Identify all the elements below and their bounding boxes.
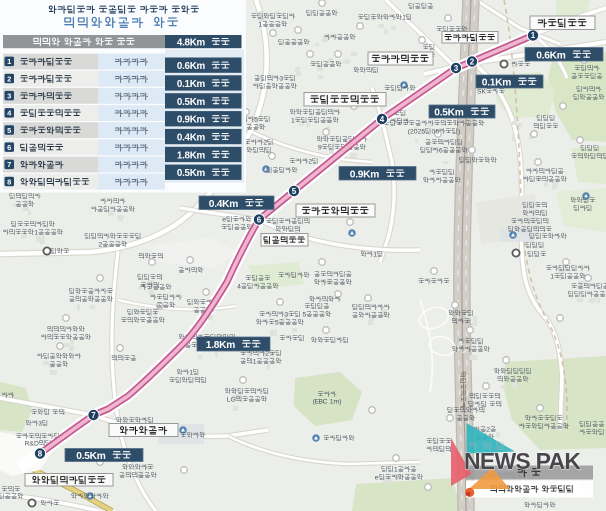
- svg-text:e: e: [375, 474, 379, 481]
- svg-text:1: 1: [402, 14, 406, 21]
- svg-text:1: 1: [373, 251, 377, 258]
- svg-text:1: 1: [550, 273, 554, 280]
- svg-text:(EBC: (EBC: [313, 398, 328, 405]
- svg-text:2: 2: [470, 57, 475, 66]
- svg-text:3: 3: [454, 64, 459, 73]
- svg-text:1: 1: [394, 466, 398, 473]
- svg-text:NEWS PAK: NEWS PAK: [464, 448, 582, 474]
- svg-text:R&D: R&D: [25, 440, 39, 447]
- svg-text:e: e: [222, 216, 226, 223]
- svg-text:0.5Km: 0.5Km: [434, 108, 464, 119]
- svg-text:(2025: (2025: [408, 128, 426, 135]
- svg-text:0.5Km: 0.5Km: [177, 97, 206, 108]
- svg-text:3: 3: [279, 75, 283, 82]
- svg-text:1: 1: [189, 369, 193, 376]
- svg-text:1: 1: [7, 57, 11, 66]
- svg-text:1: 1: [34, 229, 38, 236]
- svg-text:0.1Km: 0.1Km: [482, 78, 512, 89]
- svg-text:2: 2: [7, 74, 11, 83]
- svg-text:1m): 1m): [330, 398, 342, 405]
- svg-text:5: 5: [7, 126, 11, 135]
- svg-text:0.4Km: 0.4Km: [177, 133, 206, 144]
- svg-text:4: 4: [380, 115, 385, 124]
- svg-text:5: 5: [303, 311, 307, 318]
- svg-text:8: 8: [7, 177, 11, 186]
- svg-text:7: 7: [7, 160, 11, 169]
- svg-text:5: 5: [254, 116, 258, 123]
- svg-text:1: 1: [291, 117, 295, 124]
- svg-text:0.4Km: 0.4Km: [209, 199, 239, 210]
- svg-text:0.6Km: 0.6Km: [177, 61, 206, 72]
- svg-text:SK: SK: [477, 88, 487, 95]
- svg-text:5: 5: [292, 187, 297, 196]
- svg-text:0.1Km: 0.1Km: [177, 79, 206, 90]
- svg-text:0.9Km: 0.9Km: [350, 169, 380, 180]
- svg-text:1.8Km: 1.8Km: [206, 340, 236, 351]
- svg-text:1: 1: [253, 358, 257, 365]
- svg-text:0.9Km: 0.9Km: [177, 115, 206, 126]
- svg-text:3: 3: [284, 311, 288, 318]
- svg-text:0.5Km: 0.5Km: [76, 451, 106, 462]
- svg-text:2: 2: [265, 350, 269, 357]
- svg-text:0.5Km: 0.5Km: [177, 168, 206, 179]
- svg-text:3: 3: [38, 420, 42, 427]
- svg-text:5: 5: [275, 319, 279, 326]
- svg-text:3: 3: [7, 92, 11, 101]
- svg-text:0.6Km: 0.6Km: [536, 50, 566, 61]
- svg-text:1: 1: [531, 31, 536, 40]
- svg-text:2: 2: [308, 158, 312, 165]
- svg-text:2: 2: [263, 139, 267, 146]
- svg-text:4: 4: [237, 283, 241, 290]
- svg-text:1.8Km: 1.8Km: [177, 150, 206, 161]
- svg-text:): ): [458, 128, 460, 135]
- svg-text:6: 6: [7, 143, 11, 152]
- svg-text:8: 8: [38, 449, 43, 458]
- svg-text:2: 2: [486, 426, 490, 433]
- svg-text:1: 1: [259, 21, 263, 28]
- svg-text:LG: LG: [227, 396, 236, 403]
- svg-text:6: 6: [439, 147, 443, 154]
- svg-text:06: 06: [432, 128, 440, 135]
- svg-text:6: 6: [257, 215, 262, 224]
- svg-text:7: 7: [91, 411, 96, 420]
- svg-text:2: 2: [99, 241, 103, 248]
- svg-text:9: 9: [318, 144, 322, 151]
- svg-text:4.8Km: 4.8Km: [177, 38, 206, 49]
